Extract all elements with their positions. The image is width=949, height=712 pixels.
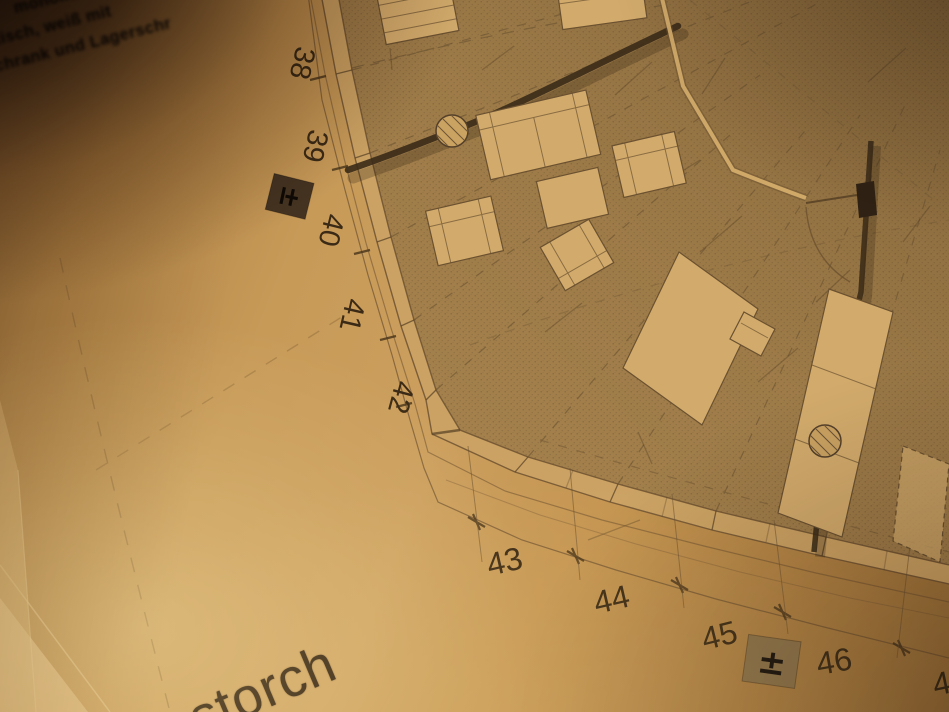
paper-fold <box>0 400 110 712</box>
partial-table-right-edge <box>893 446 949 562</box>
grid-label-44: 44 <box>590 578 633 621</box>
level-marker: ± <box>265 173 314 219</box>
level-marker-symbol: ± <box>755 641 789 685</box>
grid-label-42: 42 <box>381 378 420 417</box>
floor-plan-drawing: 38 39 40 41 42 43 44 45 46 4 ± ± <box>0 0 949 712</box>
grid-label-41: 41 <box>333 296 371 335</box>
door-panel <box>856 181 877 218</box>
grid-label-39: 39 <box>296 127 334 166</box>
photographed-floor-plan: 38 39 40 41 42 43 44 45 46 4 ± ± <box>0 0 949 712</box>
level-marker: ± <box>742 634 801 688</box>
grid-label-40: 40 <box>311 211 350 250</box>
grid-label-47-partial: 4 <box>929 664 949 703</box>
grid-label-38: 38 <box>283 44 321 83</box>
grid-label-45: 45 <box>698 614 741 658</box>
grid-label-46: 46 <box>813 640 854 682</box>
grid-label-43: 43 <box>483 540 526 583</box>
